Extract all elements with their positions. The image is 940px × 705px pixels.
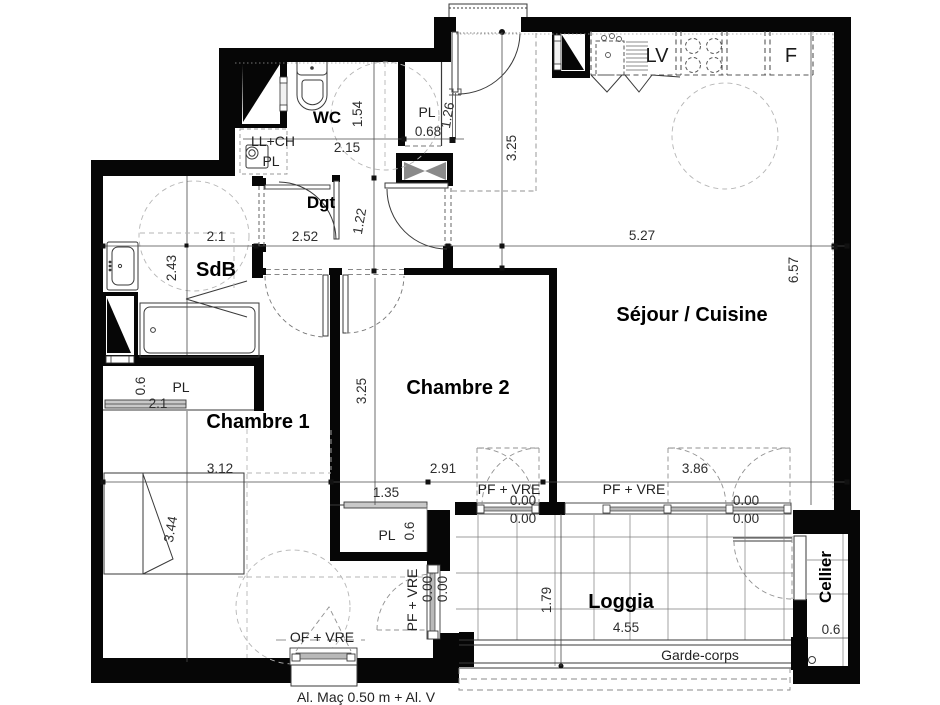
svg-text:0.00: 0.00 xyxy=(510,511,536,526)
svg-text:PL: PL xyxy=(418,104,435,120)
svg-text:6.57: 6.57 xyxy=(786,257,801,283)
svg-text:Cellier: Cellier xyxy=(816,551,835,603)
svg-text:WC: WC xyxy=(313,108,341,127)
svg-text:Chambre 2: Chambre 2 xyxy=(406,377,509,399)
svg-text:PF + VRE: PF + VRE xyxy=(404,569,420,632)
svg-text:1.35: 1.35 xyxy=(373,485,399,500)
svg-text:LV: LV xyxy=(646,45,670,67)
svg-text:SdB: SdB xyxy=(196,259,236,281)
svg-text:0.00: 0.00 xyxy=(510,493,536,508)
svg-text:3.86: 3.86 xyxy=(682,461,708,476)
svg-text:3.25: 3.25 xyxy=(504,135,519,161)
svg-text:F: F xyxy=(785,45,797,67)
svg-text:0.00: 0.00 xyxy=(733,511,759,526)
svg-text:OF + VRE: OF + VRE xyxy=(290,629,354,645)
svg-text:4.55: 4.55 xyxy=(613,620,639,635)
svg-text:Loggia: Loggia xyxy=(588,591,654,613)
svg-text:0.6: 0.6 xyxy=(402,522,417,541)
svg-text:2.91: 2.91 xyxy=(430,461,456,476)
svg-text:1.54: 1.54 xyxy=(350,100,365,127)
svg-text:2.15: 2.15 xyxy=(334,140,360,155)
svg-text:LL+CH: LL+CH xyxy=(251,133,295,149)
svg-text:PL: PL xyxy=(172,379,189,395)
svg-text:1.79: 1.79 xyxy=(539,587,554,613)
svg-text:0.00: 0.00 xyxy=(420,576,435,602)
svg-text:5.27: 5.27 xyxy=(629,228,655,243)
svg-text:3.12: 3.12 xyxy=(207,461,233,476)
svg-text:Garde-corps: Garde-corps xyxy=(661,647,739,663)
svg-text:Séjour / Cuisine: Séjour / Cuisine xyxy=(616,304,767,326)
svg-text:2.1: 2.1 xyxy=(207,229,226,244)
svg-text:3.25: 3.25 xyxy=(354,378,369,404)
svg-text:0.6: 0.6 xyxy=(133,377,148,396)
svg-text:0.00: 0.00 xyxy=(733,493,759,508)
svg-text:2.52: 2.52 xyxy=(292,229,318,244)
svg-text:Al. Maç 0.50 m + Al. V: Al. Maç 0.50 m + Al. V xyxy=(297,689,436,705)
svg-text:Chambre 1: Chambre 1 xyxy=(206,411,309,433)
svg-text:Dgt: Dgt xyxy=(307,193,336,212)
svg-text:2.43: 2.43 xyxy=(164,255,179,281)
svg-text:PF + VRE: PF + VRE xyxy=(603,481,666,497)
svg-text:PL: PL xyxy=(262,153,279,169)
svg-text:2.1: 2.1 xyxy=(149,396,168,411)
svg-text:0.6: 0.6 xyxy=(822,622,841,637)
svg-text:0.00: 0.00 xyxy=(435,576,450,602)
svg-text:PL: PL xyxy=(378,527,395,543)
